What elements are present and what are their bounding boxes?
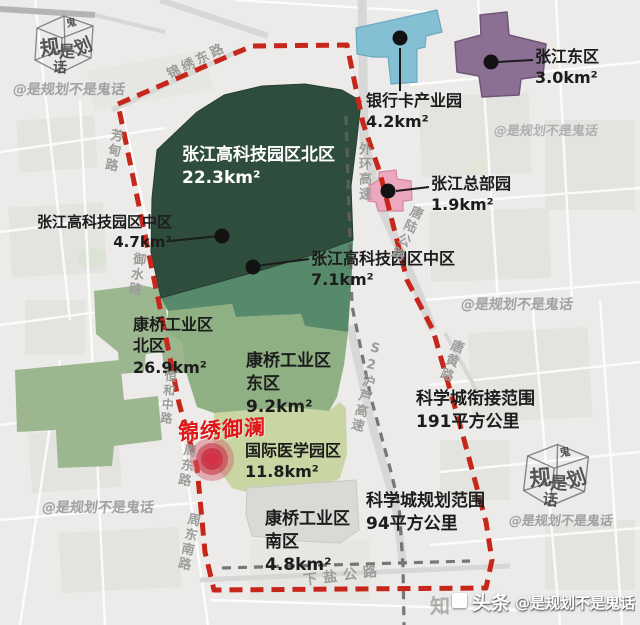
watermark-handle-bottomleft: @是规划不是鬼话 [41, 497, 156, 517]
zone-label-bankcard: 银行卡产业园 4.2km² [366, 90, 462, 133]
zone-name: 张江东区 [535, 46, 599, 67]
zone-name: 康桥工业区东区 [246, 351, 331, 394]
zone-area: 22.3km² [182, 167, 335, 190]
cube-char-gui2: 鬼 [558, 444, 571, 460]
zone-area: 11.8km² [245, 461, 341, 482]
boundary-label-planning: 科学城规划范围 94平方公里 [366, 490, 485, 536]
zone-label-zj-east: 张江东区 3.0km² [535, 46, 599, 89]
watermark-handle-topleft: @是规划不是鬼话 [12, 79, 127, 99]
brand-toutiao: 头条 [472, 588, 510, 615]
zone-area: 3.0km² [535, 67, 599, 88]
boundary-area: 94平方公里 [366, 513, 485, 536]
boundary-name: 科学城规划范围 [366, 490, 485, 513]
cube-watermark-bottomright: 规 是 划 话 鬼 [517, 439, 597, 513]
road-label-waihuan: 外环高速 [354, 142, 373, 202]
zone-name: 国际医学园区 [245, 440, 341, 461]
brand-ghost-zhihu: 知 [430, 590, 450, 619]
zone-label-zj-hq: 张江总部园 1.9km² [431, 173, 511, 216]
map-canvas: 张江高科技园区北区 22.3km² 张江高科技园区中区 4.7km² 张江高科技… [0, 0, 640, 625]
brand-logo-box [452, 593, 467, 608]
zone-name: 银行卡产业园 [366, 90, 462, 111]
boundary-label-linking: 科学城衔接范围 191平方公里 [416, 388, 535, 434]
cube-char-hua2: 话 [542, 490, 559, 510]
zone-label-zj-north: 张江高科技园区北区 22.3km² [182, 144, 335, 190]
watermark-handle-bottomright: @是规划不是鬼话 [508, 510, 615, 529]
cube-char-gui1: 规 [38, 34, 61, 61]
zone-label-zj-mid-71: 张江高科技园区中区 7.1km² [311, 248, 455, 291]
zone-area: 1.9km² [431, 194, 511, 215]
zone-area: 4.7km² [26, 232, 172, 252]
boundary-name: 科学城衔接范围 [416, 388, 535, 411]
zone-name: 康桥工业区南区 [265, 509, 350, 552]
boundary-area: 191平方公里 [416, 411, 535, 434]
zone-name: 张江高科技园区北区 [182, 144, 335, 167]
zone-name: 张江总部园 [431, 173, 511, 194]
zone-area: 7.1km² [311, 269, 455, 290]
zone-label-medical: 国际医学园区 11.8km² [245, 440, 341, 483]
watermark-handle-topright: @是规划不是鬼话 [493, 120, 600, 139]
cube-watermark-topleft: 规 是 划 话 鬼 [30, 13, 100, 77]
zone-area: 4.2km² [366, 111, 462, 132]
zone-label-zj-mid-47: 张江高科技园区中区 4.7km² [26, 212, 172, 252]
zone-label-kangqiao-east: 康桥工业区东区 9.2km² [246, 350, 338, 418]
cube-char-hua2: 话 [52, 59, 67, 77]
zone-name: 张江高科技园区中区 [311, 248, 455, 269]
brand-handle: @是规划不是鬼话 [515, 592, 635, 613]
poi-label: 锦绣御澜 [178, 411, 266, 447]
zone-name: 康桥工业区北区 [133, 315, 213, 355]
watermark-handle-midright: @是规划不是鬼话 [460, 294, 575, 314]
zone-name: 张江高科技园区中区 [26, 212, 172, 232]
zone-label-kangqiao-north: 康桥工业区北区 26.9km² [133, 314, 221, 378]
